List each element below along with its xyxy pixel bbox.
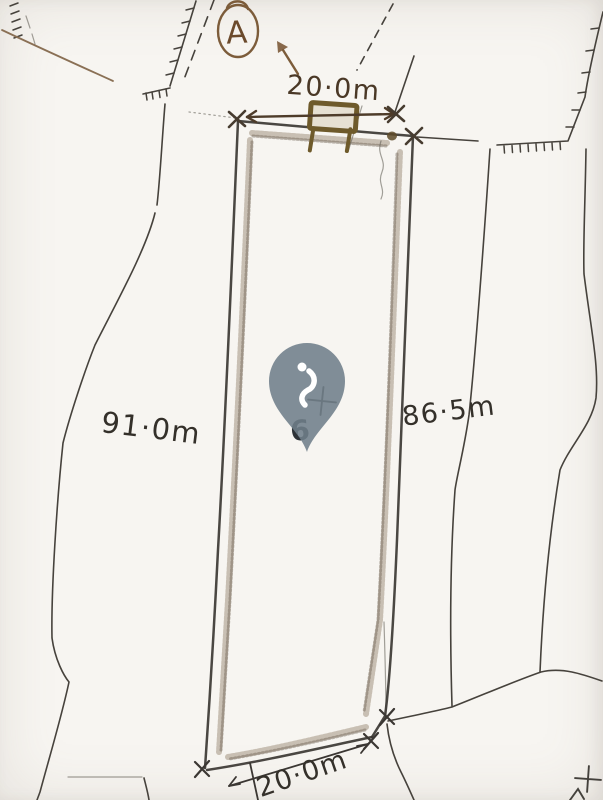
fence-line-top-right <box>497 12 603 153</box>
road-edge-line <box>2 30 113 81</box>
ink-blob <box>387 132 397 141</box>
x-mark-east-junction <box>380 709 394 725</box>
bottom-short-vertical <box>144 778 149 800</box>
label-right-length: 86·5m <box>400 390 497 432</box>
north-boundary-east-stub <box>417 137 478 141</box>
north-marker-letter: A <box>225 14 250 51</box>
label-top-width: 20·0m <box>286 70 382 107</box>
survey-sketch-page: 6 A 20·0m 91·0m 86·5m 20·0m <box>0 0 603 800</box>
arrowhead-mark-bottom-right <box>570 789 584 800</box>
south-east-ridge-line <box>388 670 602 721</box>
dashed-path-top-centre <box>357 4 393 70</box>
east-boundary-outer <box>540 149 597 672</box>
west-boundary-line-lower <box>37 213 155 800</box>
location-pin-icon[interactable] <box>269 343 345 452</box>
gate-symbol <box>308 102 357 153</box>
north-point-symbol: A <box>218 1 298 74</box>
pencil-squiggle <box>380 141 384 199</box>
west-boundary-line <box>157 104 165 205</box>
sketch-canvas: 6 A 20·0m 91·0m 86·5m 20·0m <box>0 0 603 800</box>
south-east-curve-line <box>387 724 414 800</box>
dashed-boundary-upper-left <box>183 0 214 82</box>
label-left-length: 91·0m <box>99 405 203 451</box>
fence-line-upper-left <box>143 1 196 100</box>
east-boundary-inner <box>451 149 490 706</box>
short-line-to-corner <box>395 56 414 112</box>
hatch-marks-top-left-corner <box>10 3 35 44</box>
x-mark-bottom-right <box>364 733 378 749</box>
